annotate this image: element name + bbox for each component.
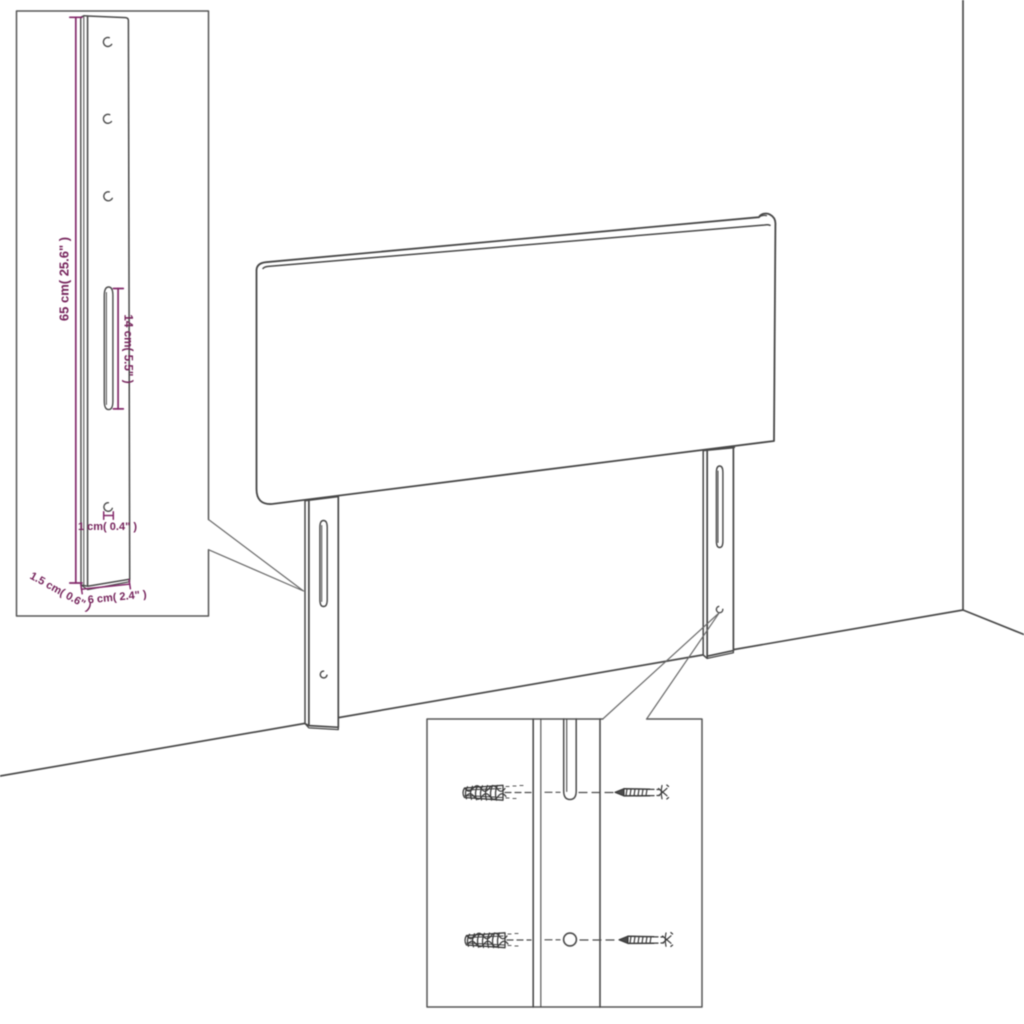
svg-text:1 cm( 0.4" ): 1 cm( 0.4" ) xyxy=(78,521,137,533)
svg-text:65 cm( 25.6" ): 65 cm( 25.6" ) xyxy=(57,237,72,321)
svg-text:6 cm( 2.4" ): 6 cm( 2.4" ) xyxy=(87,589,147,607)
svg-text:14 cm( 5.5" ): 14 cm( 5.5" ) xyxy=(122,314,135,383)
